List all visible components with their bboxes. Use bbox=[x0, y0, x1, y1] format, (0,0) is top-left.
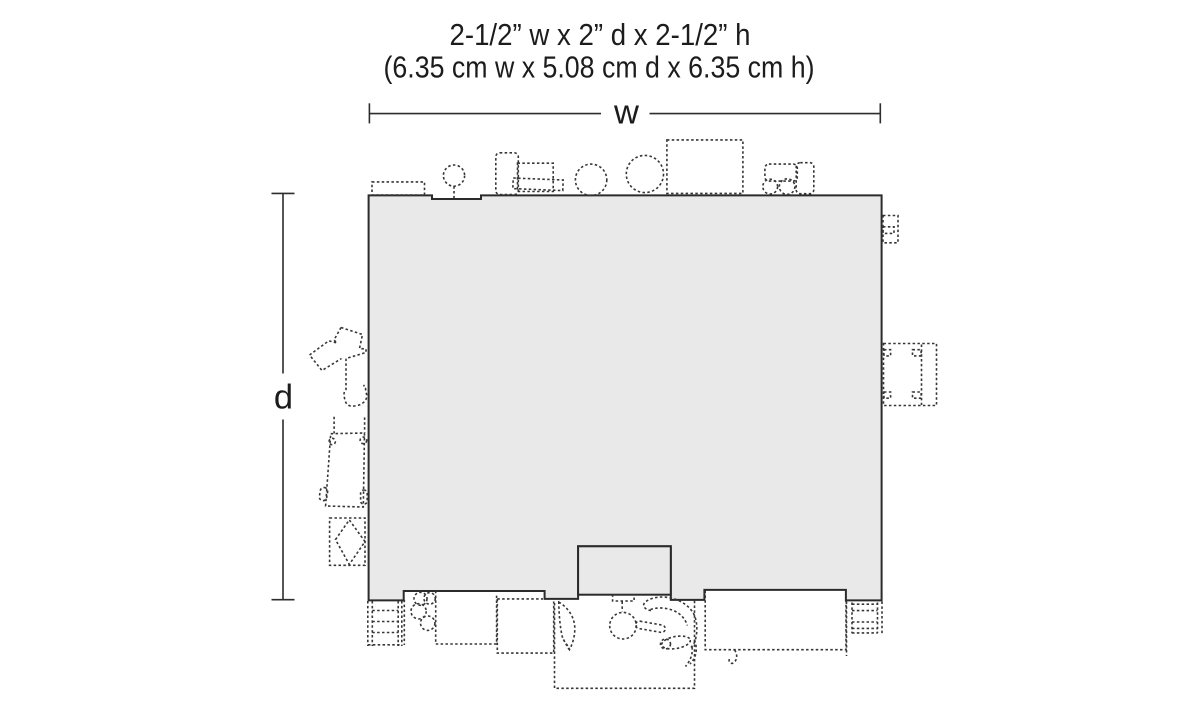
svg-text:(6.35 cm w x 5.08 cm d x 6.35: (6.35 cm w x 5.08 cm d x 6.35 cm h) bbox=[384, 51, 815, 85]
svg-text:d: d bbox=[274, 379, 293, 417]
svg-text:2-1/2” w x 2” d x 2-1/2” h: 2-1/2” w x 2” d x 2-1/2” h bbox=[450, 18, 751, 52]
svg-text:w: w bbox=[613, 94, 639, 132]
